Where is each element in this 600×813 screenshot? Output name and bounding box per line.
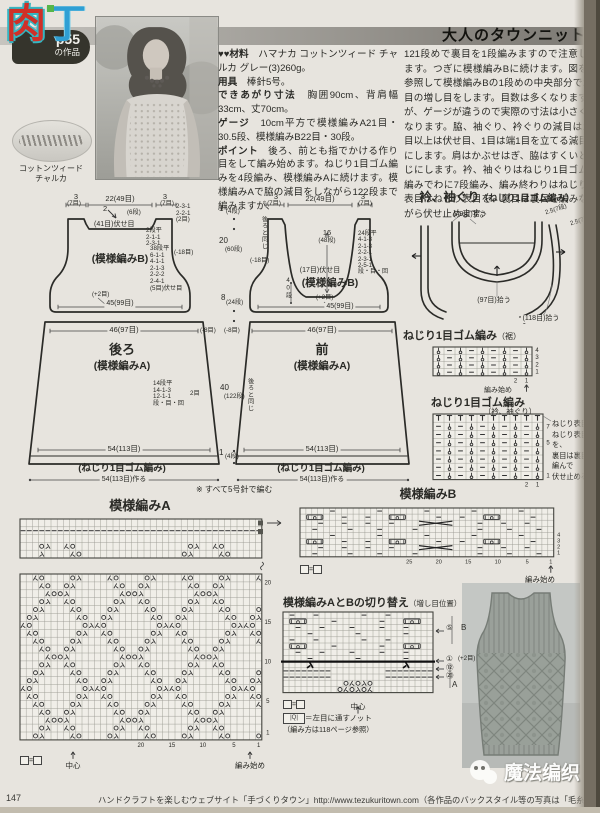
page-number: 147	[6, 793, 21, 803]
collar-armhole-diagram	[421, 211, 560, 323]
watermark: 魔法编织	[468, 758, 580, 785]
svg-text:1: 1	[525, 378, 529, 384]
switch-row5-badge: ⑤	[446, 624, 453, 632]
svg-text:4: 4	[557, 532, 560, 538]
svg-text:7: 7	[546, 424, 550, 430]
garment-back-photo	[462, 583, 580, 768]
pattern-a-center: 中心	[66, 762, 81, 770]
svg-text:15: 15	[264, 620, 271, 626]
svg-text:1: 1	[546, 474, 550, 480]
front-same-as-back-armhole: 後ろと同じ	[260, 216, 267, 262]
dim-dec-front: (-8目)	[224, 328, 240, 335]
rib-collar-title-sub: （衿、袖ぐり）	[484, 408, 537, 416]
switch-chart	[283, 612, 433, 693]
svg-text:1: 1	[549, 559, 552, 565]
back-hem-rib: (ねじり1目ゴム編み)	[78, 464, 166, 475]
legend-knit-box	[33, 756, 42, 765]
materials-line: ♥♥材料 ハマナカ コットンツィード チャルカ グレー(3)260g。	[218, 48, 398, 76]
back-neck-rows: (6段)	[127, 210, 141, 217]
back-hem-width: 54(113目)	[106, 445, 143, 453]
back-inc: (+2目)	[92, 292, 109, 299]
back-cast-on: 54(113目)作る	[100, 476, 149, 484]
book-binding-edge	[596, 0, 600, 813]
svg-text:2: 2	[514, 378, 518, 384]
front-top-width: 22(49目)	[305, 195, 334, 203]
footer-text: ハンドクラフトを楽しむウェブサイト「手づくりタウン」http://www.tez…	[98, 794, 588, 806]
legend-empty-box	[20, 756, 29, 765]
needle-note: ※ すべて5号針で編む	[196, 486, 273, 495]
back-yoke-width: 45(99目)	[104, 300, 135, 308]
front-pattern-a-label: (模様編みA)	[294, 361, 351, 373]
back-side-total: 2目	[190, 391, 200, 398]
back-pattern-b-label: (模様編みB)	[92, 254, 149, 266]
watermark-text: 魔法编织	[504, 758, 580, 785]
switch-knot-ref: （編み方は118ページ参照）	[283, 726, 373, 734]
front-yoke-width: 45(99目)	[324, 303, 355, 311]
back-top-side-st-r: (7目)	[160, 201, 174, 208]
page-edge-shadow	[574, 0, 584, 813]
back-neck-bindoff: (41目)伏せ目	[94, 221, 134, 229]
materials-label: 用具	[218, 77, 237, 88]
dim-armhole-rows: (24段)	[226, 300, 243, 307]
collar-pickup-top: (49目)拾う	[453, 211, 486, 219]
logo-char-1: 肉	[6, 2, 46, 46]
back-neck-cm: 2	[103, 205, 107, 213]
svg-text:5: 5	[232, 743, 236, 749]
front-armhole-dec: (-18目)	[250, 258, 269, 265]
switch-knot-legend: |Q|＝左目に通すノット	[283, 713, 372, 724]
pattern-b-legend: =	[300, 565, 322, 574]
svg-text:1: 1	[535, 370, 539, 376]
materials-line: ゲージ 10cm平方で模様編みA21目・30.5段、模様編みB22目・30段。	[218, 117, 398, 145]
back-pattern-a-label: (模様編みA)	[94, 361, 151, 373]
svg-text:3: 3	[535, 355, 539, 361]
front-neck-shaping: 24段平 4-1-3 2-1-3 2-2-1 2-3-1 2-5-1 段・目・回	[358, 231, 388, 276]
materials-label: ポイント	[218, 146, 258, 157]
svg-text:2: 2	[557, 545, 560, 551]
svg-text:20: 20	[138, 743, 145, 749]
svg-text:20: 20	[436, 559, 442, 565]
page-edge-dark	[584, 0, 596, 813]
switch-legend: =	[283, 700, 305, 709]
legend-knit-box	[313, 565, 322, 574]
watermark-sheep-icon	[468, 759, 498, 785]
materials-line: できあがり寸法 胸囲90cm、背肩幅33cm、丈70cm。	[218, 89, 398, 117]
svg-text:1: 1	[557, 551, 560, 557]
front-strap-rows: 40段	[284, 277, 291, 301]
rib-hem-title-sub: （裾）	[497, 332, 521, 341]
svg-text:10: 10	[200, 743, 207, 749]
dim-dec-back: (-8目)	[200, 328, 216, 335]
svg-text:5: 5	[266, 699, 270, 705]
svg-text:15: 15	[465, 559, 471, 565]
back-armhole-dec: (-18目)	[174, 250, 193, 257]
svg-text:20: 20	[264, 580, 271, 586]
front-neck-bindoff: (17目)伏せ目	[300, 267, 340, 275]
svg-text:15: 15	[169, 743, 176, 749]
materials-line: 用具 棒針5号。	[218, 76, 398, 90]
pattern-b-chart	[300, 508, 554, 557]
page-title: 大人のタウンニット	[442, 27, 586, 45]
switch-title-main: 模様編みAとBの切り替え	[283, 597, 409, 609]
magazine-page: 大人のタウンニット 肉丁 p55 の作品 コッ	[0, 0, 600, 813]
front-top-side-st: (7目)	[267, 201, 281, 208]
back-top-width: 22(49目)	[105, 195, 134, 203]
dim-back-neck-cm: 1	[219, 205, 223, 214]
front-hem-width: 54(113目)	[304, 445, 341, 453]
collar-title: 衿、袖ぐり（ねじり1目ゴム編み）	[419, 191, 574, 204]
rib-hem-start: 編み始め	[484, 387, 512, 395]
front-neck-rows: (48段)	[316, 238, 337, 245]
back-top-side-st: (7目)	[67, 201, 81, 208]
dim-rib-rows: (4段)	[225, 454, 239, 461]
pattern-a-title: 模様編みA	[109, 499, 170, 514]
rib-hem-title-main: ねじり1目ゴム編み	[403, 330, 497, 342]
front-name: 前	[315, 343, 328, 358]
svg-text:4: 4	[535, 348, 539, 354]
front-pattern-b-label: (模様編みB)	[302, 278, 359, 290]
svg-text:1: 1	[536, 483, 540, 489]
switch-section-a: A	[452, 681, 457, 690]
collar-pickup-side: (118目)拾う	[521, 315, 562, 323]
pattern-a-start: 編み始め	[235, 762, 265, 770]
collar-title-sub: （ねじり1目ゴム編み）	[480, 193, 575, 203]
back-side-shaping: 14段平 14-1-3 12-1-1 段・目・回	[153, 381, 184, 407]
switch-inc: (+2目)	[458, 656, 475, 663]
rib-collar-chart	[433, 414, 543, 480]
svg-text:10: 10	[495, 559, 501, 565]
materials-text: ♥♥材料 ハマナカ コットンツィード チャルカ グレー(3)260g。 用具 棒…	[218, 48, 398, 214]
materials-label: できあがり寸法	[218, 90, 296, 101]
svg-text:5: 5	[546, 441, 550, 447]
svg-text:2: 2	[535, 362, 539, 368]
switch-title-sub: （増し目位置）	[409, 599, 462, 608]
materials-value: 棒針5号。	[237, 77, 290, 88]
switch-section-b: B	[461, 624, 466, 633]
svg-text:1: 1	[266, 731, 270, 737]
svg-text:1: 1	[257, 743, 261, 749]
dim-back-neck-rows: (4段)	[226, 209, 240, 216]
logo-dot	[47, 5, 54, 12]
materials-label: ゲージ	[218, 118, 250, 129]
back-name: 後ろ	[109, 343, 135, 358]
switch-title: 模様編みAとBの切り替え（増し目位置）	[283, 597, 461, 609]
rib-hem-title: ねじり1目ゴム編み（裾）	[403, 330, 521, 342]
yarn-strand	[19, 135, 83, 146]
dim-rib-cm: 1	[219, 449, 223, 458]
back-body-width: 46(97目)	[107, 326, 140, 334]
legend-knit-box	[296, 700, 305, 709]
svg-text:10: 10	[264, 659, 271, 665]
pattern-a-legend: =	[20, 756, 42, 765]
legend-empty-box	[300, 565, 309, 574]
front-hem-rib: (ねじり1目ゴム編み)	[277, 464, 365, 475]
pattern-a-main-chart	[20, 574, 262, 740]
dim-body-rows: (122段)	[224, 394, 245, 401]
yarn-label: コットンツィード チャルカ	[8, 164, 94, 184]
front-top-side-st-r: (7目)	[358, 201, 372, 208]
dim-armhole-cm: 8	[221, 294, 225, 303]
page-bottom-edge	[0, 807, 600, 813]
dim-yoke-rows: (60段)	[225, 247, 242, 254]
svg-text:5: 5	[526, 559, 529, 565]
collar-title-main: 衿、袖ぐり	[419, 190, 479, 204]
pattern-b-title: 模様編みB	[400, 488, 457, 501]
pattern-b-start: 編み始め	[525, 576, 555, 584]
svg-text:3: 3	[557, 539, 560, 545]
site-logo: 肉丁	[6, 4, 86, 44]
front-inc: (+2目)	[316, 295, 333, 302]
knot-symbol: |Q|	[283, 713, 305, 724]
rib-hem-chart	[433, 347, 532, 376]
back-shoulder-shaping: 2-3-1 2-2-1 (2目)	[176, 204, 190, 224]
knot-label: ＝左目に通すノット	[305, 713, 372, 722]
yarn-swatch	[12, 120, 92, 162]
front-cast-on: 54(113目)作る	[298, 476, 347, 484]
front-body-width: 46(97目)	[305, 326, 338, 334]
front-same-as-back-side: 後ろと同じ	[246, 378, 253, 424]
dim-yoke-cm: 20	[219, 237, 228, 246]
svg-text:2: 2	[525, 483, 529, 489]
collar-pickup-bottom: (97目)拾う	[475, 297, 512, 305]
model-photo	[95, 16, 219, 180]
switch-center: 中心	[351, 703, 366, 711]
legend-empty-box	[283, 700, 292, 709]
badge-sub: の作品	[12, 47, 80, 57]
dim-body-cm: 40	[220, 384, 229, 393]
materials-label: ♥♥材料	[218, 49, 249, 60]
pattern-a-top-band	[20, 519, 262, 558]
svg-text:25: 25	[406, 559, 412, 565]
